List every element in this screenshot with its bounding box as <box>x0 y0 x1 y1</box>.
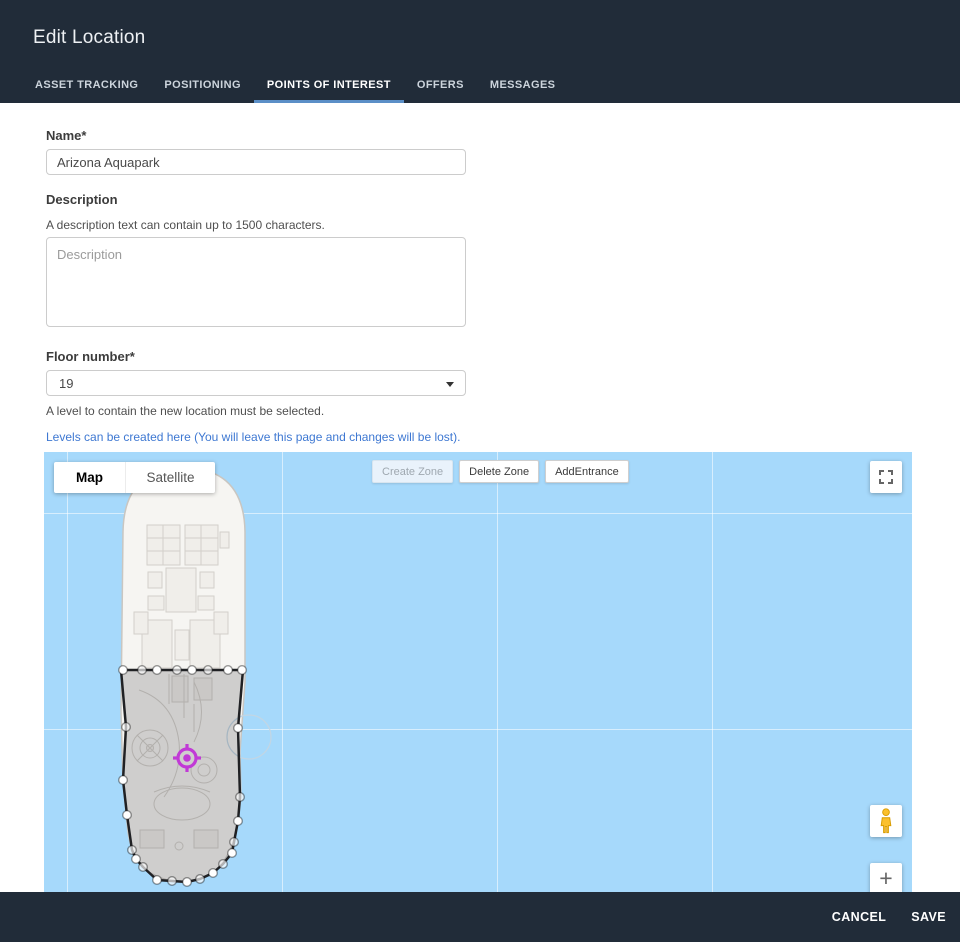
map-gridline <box>712 452 713 892</box>
name-label: Name* <box>46 128 960 143</box>
create-zone-button[interactable]: Create Zone <box>372 460 453 483</box>
description-textarea[interactable] <box>46 237 466 327</box>
pegman-icon <box>878 808 894 834</box>
add-entrance-button[interactable]: AddEntrance <box>545 460 629 483</box>
edit-location-form: Name* Description A description text can… <box>0 103 960 452</box>
floor-helper-text: A level to contain the new location must… <box>46 404 960 418</box>
floor-number-value: 19 <box>59 376 73 391</box>
tab-offers[interactable]: OFFERS <box>404 79 477 103</box>
save-button[interactable]: SAVE <box>905 902 952 932</box>
delete-zone-button[interactable]: Delete Zone <box>459 460 539 483</box>
name-input[interactable] <box>46 149 466 175</box>
pegman-button[interactable] <box>870 805 902 837</box>
zone-button-group: Create Zone Delete Zone AddEntrance <box>372 460 629 483</box>
zoom-in-icon: + <box>879 863 892 892</box>
ship-floorplan-overlay <box>44 452 304 892</box>
map-type-satellite-button[interactable]: Satellite <box>125 462 215 493</box>
description-helper-text: A description text can contain up to 150… <box>46 218 960 232</box>
footer-bar: CANCEL SAVE <box>0 892 960 942</box>
tab-asset-tracking[interactable]: ASSET TRACKING <box>22 79 151 103</box>
caret-down-icon <box>446 382 454 387</box>
map-gridline <box>497 452 498 892</box>
tab-positioning[interactable]: POSITIONING <box>151 79 254 103</box>
fullscreen-button[interactable] <box>870 461 902 493</box>
cancel-button[interactable]: CANCEL <box>826 902 892 932</box>
tab-bar: ASSET TRACKING POSITIONING POINTS OF INT… <box>22 79 568 103</box>
description-label: Description <box>46 192 960 207</box>
map-type-map-button[interactable]: Map <box>54 462 125 493</box>
zone-polygon[interactable] <box>121 670 243 882</box>
fullscreen-icon <box>879 470 893 484</box>
header-bar: Edit Location ASSET TRACKING POSITIONING… <box>0 0 960 103</box>
tab-points-of-interest[interactable]: POINTS OF INTEREST <box>254 79 404 103</box>
floor-number-select[interactable]: 19 <box>46 370 466 396</box>
page-title: Edit Location <box>0 0 960 49</box>
floor-number-label: Floor number* <box>46 349 960 364</box>
levels-link[interactable]: Levels can be created here (You will lea… <box>46 430 460 444</box>
zoom-in-button[interactable]: + <box>870 863 902 892</box>
map-type-control: Map Satellite <box>54 462 215 493</box>
map-canvas[interactable]: Map Satellite Create Zone Delete Zone Ad… <box>44 452 912 892</box>
tab-messages[interactable]: MESSAGES <box>477 79 569 103</box>
